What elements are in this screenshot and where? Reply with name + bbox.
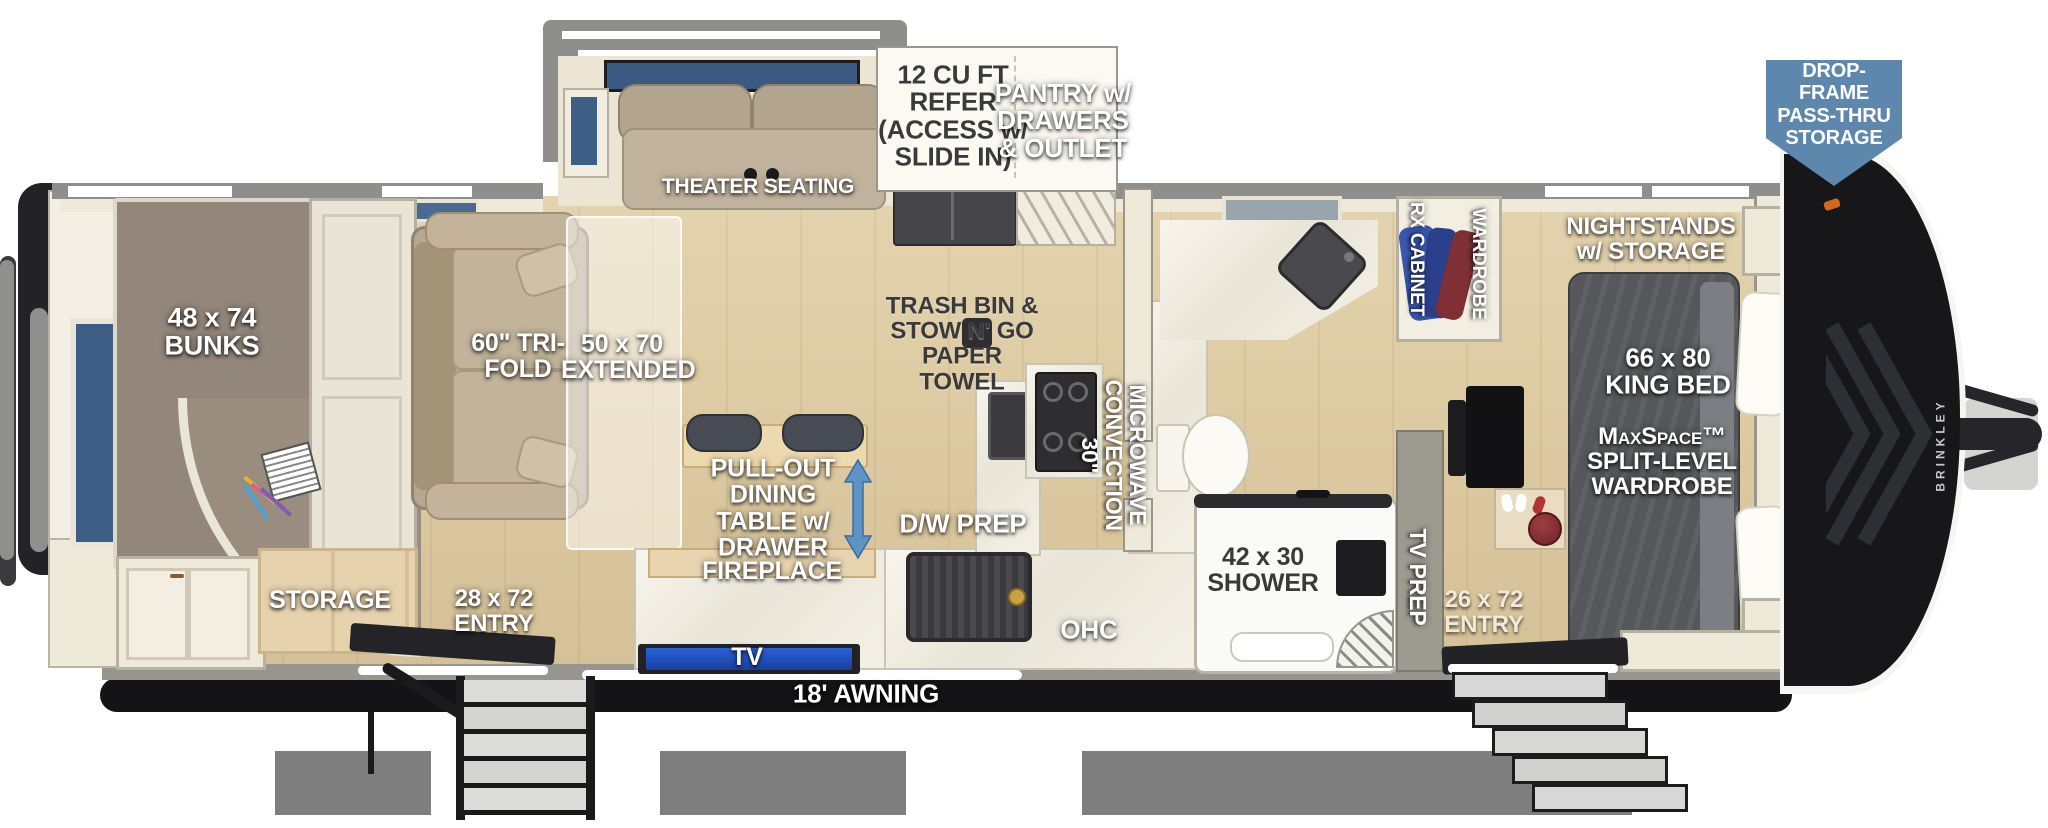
label-awning: 18' AWNING bbox=[793, 680, 939, 707]
toilet-bowl bbox=[1182, 414, 1250, 498]
sofa-armrest-bottom bbox=[425, 482, 579, 520]
ground-shadow-mid bbox=[660, 751, 906, 815]
cabinet-handle bbox=[170, 574, 184, 578]
bedroom-tv-panel-small bbox=[1448, 400, 1466, 476]
shower-glass bbox=[1194, 494, 1392, 508]
bedroom-stool bbox=[1528, 512, 1562, 546]
slide-side-window bbox=[571, 97, 597, 165]
label-dw-prep: D/W PREP bbox=[900, 510, 1027, 537]
bedroom-window-2 bbox=[1652, 186, 1749, 197]
bedroom-bottom-cabinet bbox=[1620, 630, 1790, 672]
shower-door-handle bbox=[1296, 490, 1330, 498]
label-wardrobe: WARDROBE bbox=[1468, 208, 1488, 319]
shower-fixture bbox=[1336, 540, 1386, 596]
steps-right-tread-3 bbox=[1492, 728, 1648, 756]
label-nightstands: NIGHTSTANDS w/ STORAGE bbox=[1565, 214, 1737, 264]
label-rx-cabinet: RX CABINET bbox=[1406, 202, 1426, 316]
steps-right-tread-5 bbox=[1532, 784, 1688, 812]
label-theater-seating: THEATER SEATING bbox=[662, 176, 854, 198]
storage-cabinet-door-2 bbox=[188, 568, 250, 660]
steps-left-handrail-post bbox=[368, 712, 374, 774]
hitch-tongue bbox=[1948, 418, 2042, 450]
label-storage: STORAGE bbox=[269, 587, 391, 613]
label-king-bed: 66 x 80 KING BED bbox=[1603, 345, 1733, 400]
dining-stool-1 bbox=[686, 414, 762, 452]
label-tri-fold: 60" TRI-FOLD bbox=[463, 330, 573, 383]
label-trash-bin: TRASH BIN & STOW N' GO PAPER TOWEL bbox=[878, 294, 1046, 395]
rear-wall-lower bbox=[48, 538, 120, 668]
label-extended: 50 x 70 EXTENDED bbox=[561, 331, 683, 384]
bunk-divider-panel-1 bbox=[322, 214, 402, 380]
sofa-window bbox=[382, 186, 472, 197]
floorplan-diagram: DROP-FRAME PASS-THRU STORAGE bbox=[0, 0, 2048, 828]
rear-rail-outer bbox=[0, 260, 14, 560]
bunk-window bbox=[68, 186, 232, 197]
brand-label: BRINKLEY bbox=[1935, 398, 1948, 491]
bedroom-tv-panel bbox=[1466, 386, 1524, 488]
pantry-shelves bbox=[1016, 188, 1116, 246]
shower-seat bbox=[1230, 632, 1334, 662]
dining-stool-2 bbox=[782, 414, 864, 452]
bath-faucet-icon bbox=[1344, 252, 1354, 262]
bunk-divider-panel-2 bbox=[322, 396, 402, 572]
steps-left-tread-1 bbox=[464, 680, 586, 707]
steps-left-tread-3 bbox=[464, 734, 586, 761]
refrigerator bbox=[893, 188, 1017, 246]
label-maxspace: MaxSpace™ SPLIT-LEVEL WARDROBE bbox=[1582, 424, 1742, 500]
steps-left-tread-4 bbox=[464, 761, 586, 788]
ground-shadow-left bbox=[275, 751, 431, 815]
rear-rail-inner bbox=[30, 308, 48, 552]
label-entry-right: 26 x 72 ENTRY bbox=[1429, 587, 1539, 637]
drop-frame-badge-label: DROP-FRAME PASS-THRU STORAGE bbox=[1771, 60, 1897, 150]
label-microwave: 30" CONVECTION MICROWAVE bbox=[1078, 363, 1150, 548]
stow-n-go-compartment bbox=[988, 392, 1030, 460]
label-tv-prep: TV PREP bbox=[1406, 528, 1430, 625]
burner-1 bbox=[1043, 382, 1063, 402]
steps-right-tread-1 bbox=[1452, 672, 1608, 700]
steps-left-stringer-r bbox=[586, 676, 595, 820]
label-dining-table: PULL-OUT DINING TABLE w/ DRAWER bbox=[687, 456, 859, 561]
burner-3 bbox=[1043, 432, 1063, 452]
steps-right-tread-4 bbox=[1512, 756, 1668, 784]
bedroom-window-1 bbox=[1545, 186, 1642, 197]
steps-left-tread-2 bbox=[464, 707, 586, 734]
label-ohc: OHC bbox=[1060, 616, 1117, 643]
slide-out-trim-1 bbox=[562, 31, 880, 39]
label-bunks: 48 x 74 BUNKS bbox=[147, 304, 277, 361]
storage-cabinet-door-1 bbox=[126, 568, 188, 660]
kitchen-faucet-icon bbox=[1008, 588, 1026, 606]
refrigerator-seam bbox=[951, 190, 954, 240]
label-entry-left: 28 x 72 ENTRY bbox=[439, 586, 549, 636]
label-tv: TV bbox=[731, 644, 763, 670]
steps-right-tread-2 bbox=[1472, 700, 1628, 728]
label-fireplace: FIREPLACE bbox=[702, 558, 842, 584]
label-shower: 42 x 30 SHOWER bbox=[1201, 544, 1326, 597]
steps-left-tread-5 bbox=[464, 788, 586, 815]
sofa-back bbox=[414, 242, 456, 490]
label-pantry: PANTRY w/ DRAWERS & OUTLET bbox=[988, 80, 1138, 162]
brand-chevron-logo bbox=[1826, 318, 1938, 550]
